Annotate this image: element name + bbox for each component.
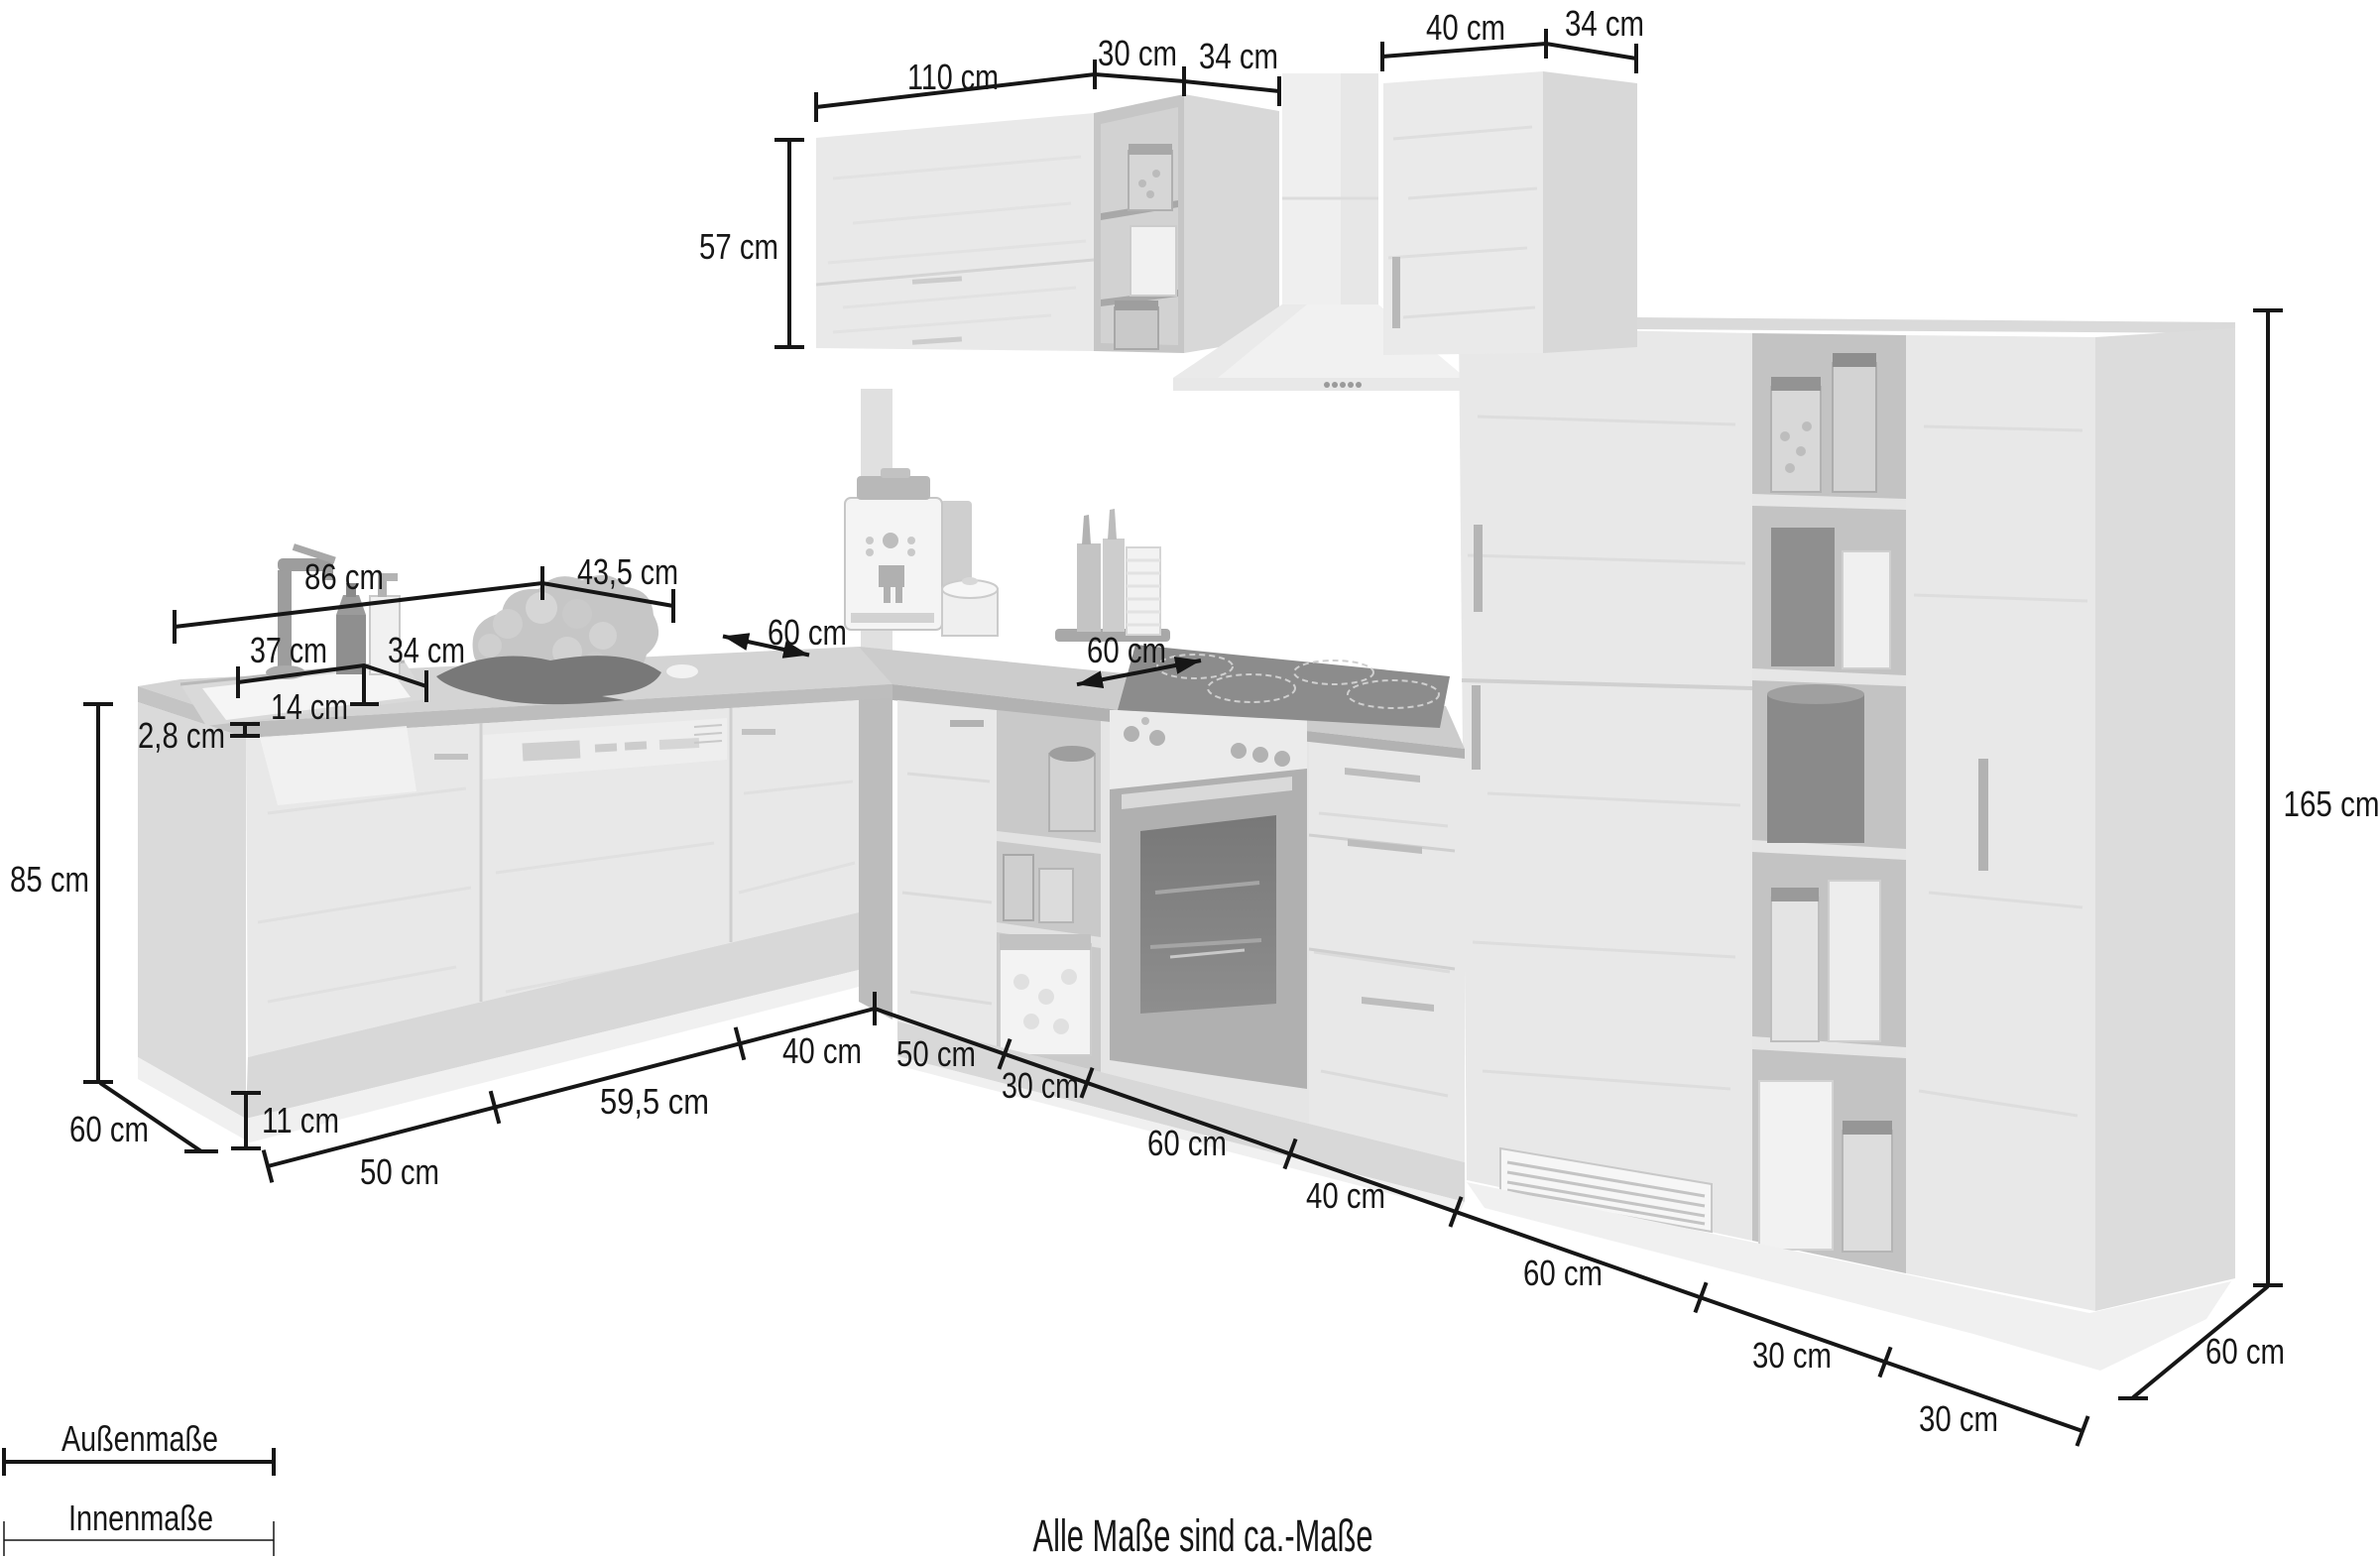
svg-text:Alle Maße sind ca.-Maße: Alle Maße sind ca.-Maße xyxy=(1033,1510,1373,1559)
svg-text:60 cm: 60 cm xyxy=(768,612,847,653)
svg-text:57 cm: 57 cm xyxy=(699,226,778,267)
svg-text:37 cm: 37 cm xyxy=(250,630,327,670)
svg-text:30 cm: 30 cm xyxy=(1919,1398,1998,1439)
svg-text:60 cm: 60 cm xyxy=(1147,1123,1227,1163)
svg-text:40 cm: 40 cm xyxy=(1306,1175,1385,1216)
svg-text:60 cm: 60 cm xyxy=(69,1109,149,1149)
svg-text:60 cm: 60 cm xyxy=(1523,1253,1603,1293)
svg-text:Innenmaße: Innenmaße xyxy=(68,1498,213,1538)
svg-text:34 cm: 34 cm xyxy=(1565,3,1644,44)
svg-text:2,8 cm: 2,8 cm xyxy=(138,715,225,756)
svg-text:59,5 cm: 59,5 cm xyxy=(600,1081,709,1122)
svg-text:30 cm: 30 cm xyxy=(1752,1335,1832,1376)
svg-text:110 cm: 110 cm xyxy=(907,57,999,97)
svg-text:50 cm: 50 cm xyxy=(896,1033,976,1074)
svg-text:40 cm: 40 cm xyxy=(1426,7,1505,48)
svg-text:34 cm: 34 cm xyxy=(1199,36,1278,76)
svg-text:14 cm: 14 cm xyxy=(271,686,348,727)
svg-text:60 cm: 60 cm xyxy=(2205,1331,2285,1372)
svg-text:85 cm: 85 cm xyxy=(10,859,89,899)
svg-text:86 cm: 86 cm xyxy=(304,556,384,597)
svg-text:34 cm: 34 cm xyxy=(388,630,465,670)
svg-text:50 cm: 50 cm xyxy=(360,1151,439,1192)
svg-text:11 cm: 11 cm xyxy=(262,1100,339,1140)
svg-text:30 cm: 30 cm xyxy=(1098,33,1177,73)
svg-text:60 cm: 60 cm xyxy=(1087,630,1166,670)
svg-text:40 cm: 40 cm xyxy=(782,1030,862,1071)
svg-text:165 cm: 165 cm xyxy=(2284,783,2380,824)
svg-text:30 cm: 30 cm xyxy=(1002,1065,1079,1106)
svg-text:Außenmaße: Außenmaße xyxy=(61,1418,218,1459)
svg-text:43,5 cm: 43,5 cm xyxy=(577,551,678,592)
